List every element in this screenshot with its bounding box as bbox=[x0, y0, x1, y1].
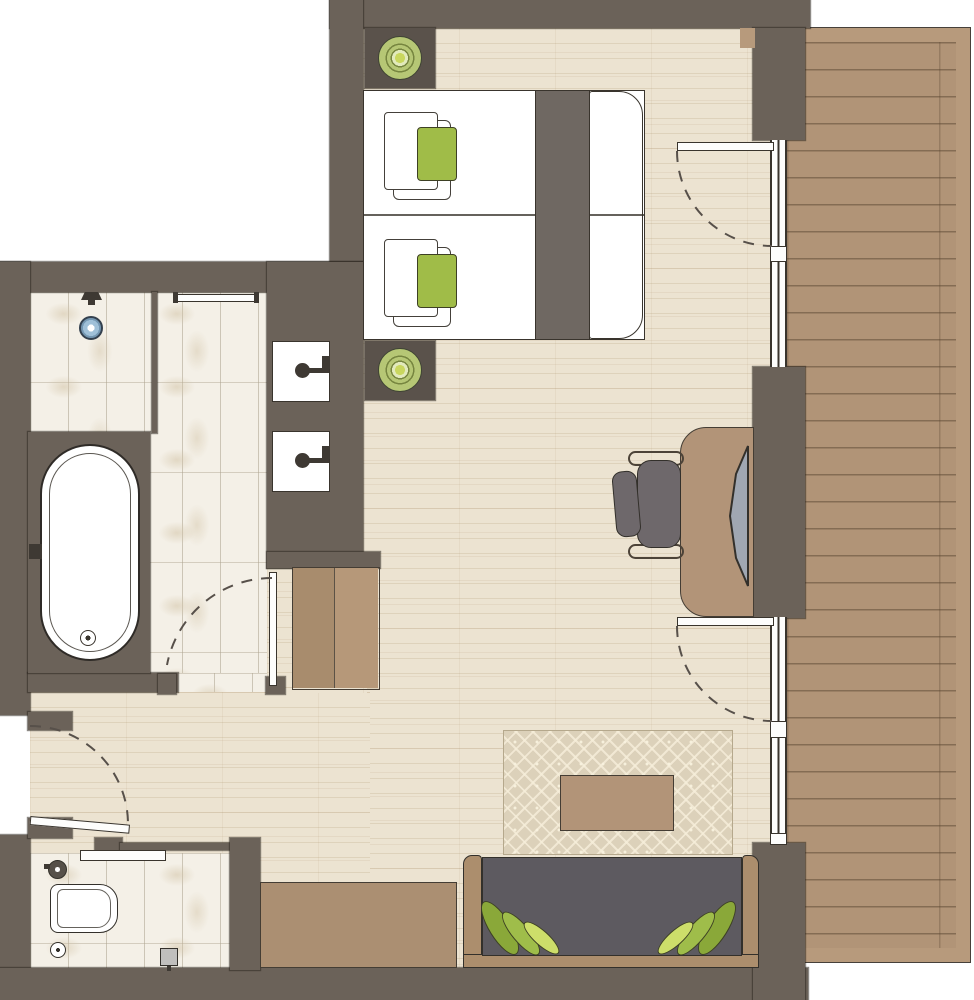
balcony-deck bbox=[787, 28, 970, 962]
wc-floor-drain bbox=[160, 948, 178, 966]
coffee-table bbox=[560, 775, 674, 831]
mattress-divider bbox=[364, 214, 644, 216]
entry-door-frame-top bbox=[28, 712, 72, 730]
toilet-seat bbox=[57, 889, 111, 928]
office-chair-seat bbox=[637, 460, 681, 548]
wardrobe-door-right bbox=[335, 568, 378, 688]
sofa-armrest-left bbox=[463, 855, 482, 967]
shower-divider bbox=[152, 292, 157, 433]
sofa-armrest-right bbox=[742, 855, 759, 967]
window-end-cap bbox=[770, 833, 787, 845]
sideboard bbox=[260, 882, 457, 968]
toilet-paper-holder bbox=[50, 942, 66, 958]
curtain-box bbox=[740, 28, 755, 48]
shower-floor-drain bbox=[79, 316, 103, 340]
window-fixed-glass-2 bbox=[770, 738, 787, 833]
wall-wc-right bbox=[230, 838, 260, 970]
wall-wc-thin bbox=[120, 843, 232, 850]
wall-vanity bbox=[267, 262, 363, 568]
wc-hand-shower-bracket bbox=[44, 864, 50, 869]
table-lamp-2 bbox=[378, 348, 422, 392]
bathtub-inner-rim bbox=[49, 453, 131, 652]
cushion-green-2 bbox=[417, 254, 457, 308]
wc-sliding-door bbox=[80, 850, 166, 861]
wall-vanity-stub bbox=[267, 552, 380, 568]
floor-plan bbox=[0, 0, 974, 1000]
window-mullion-2 bbox=[770, 721, 787, 738]
window-mullion-1 bbox=[770, 246, 787, 262]
wall-bathroom-bottom bbox=[28, 673, 178, 692]
shower-partition-cap-right bbox=[254, 292, 259, 303]
shower-head-stem bbox=[88, 300, 95, 305]
wall-bottom bbox=[0, 968, 808, 1000]
bed-runner bbox=[535, 90, 590, 340]
desk bbox=[680, 427, 754, 617]
wc-hand-shower bbox=[48, 860, 67, 879]
bathroom-tiles-doorway bbox=[176, 673, 267, 692]
window-balcony-door2-glass bbox=[770, 617, 787, 721]
shower-partition-cap-left bbox=[173, 292, 178, 303]
window-balcony-door1-glass bbox=[770, 140, 787, 246]
sofa-back bbox=[463, 954, 759, 968]
wall-outer-left-upper bbox=[0, 262, 30, 715]
balcony-door-2-leaf bbox=[677, 617, 774, 626]
wall-top bbox=[330, 0, 810, 28]
wall-pier-bottom-right bbox=[753, 843, 805, 1000]
window-fixed-glass-1 bbox=[770, 262, 787, 367]
bathroom-door-leaf bbox=[269, 572, 277, 686]
balcony-door-1-leaf bbox=[677, 142, 774, 151]
wall-pier-top-right bbox=[753, 28, 805, 140]
faucet-1-handle bbox=[322, 356, 330, 369]
shower-partition bbox=[176, 294, 256, 302]
wc-drain-stub bbox=[167, 966, 171, 971]
wall-bathroom-bottom-block bbox=[158, 674, 176, 694]
wardrobe-door-left bbox=[293, 568, 335, 688]
bathtub-faucet bbox=[29, 544, 42, 559]
wardrobe bbox=[292, 567, 380, 690]
wall-pier-mid-right bbox=[753, 367, 805, 618]
cushion-green-1 bbox=[417, 127, 457, 181]
table-lamp-1 bbox=[378, 36, 422, 80]
faucet-2-handle bbox=[322, 446, 330, 459]
bathtub-drain bbox=[80, 630, 96, 646]
wall-left-upper bbox=[330, 0, 363, 262]
